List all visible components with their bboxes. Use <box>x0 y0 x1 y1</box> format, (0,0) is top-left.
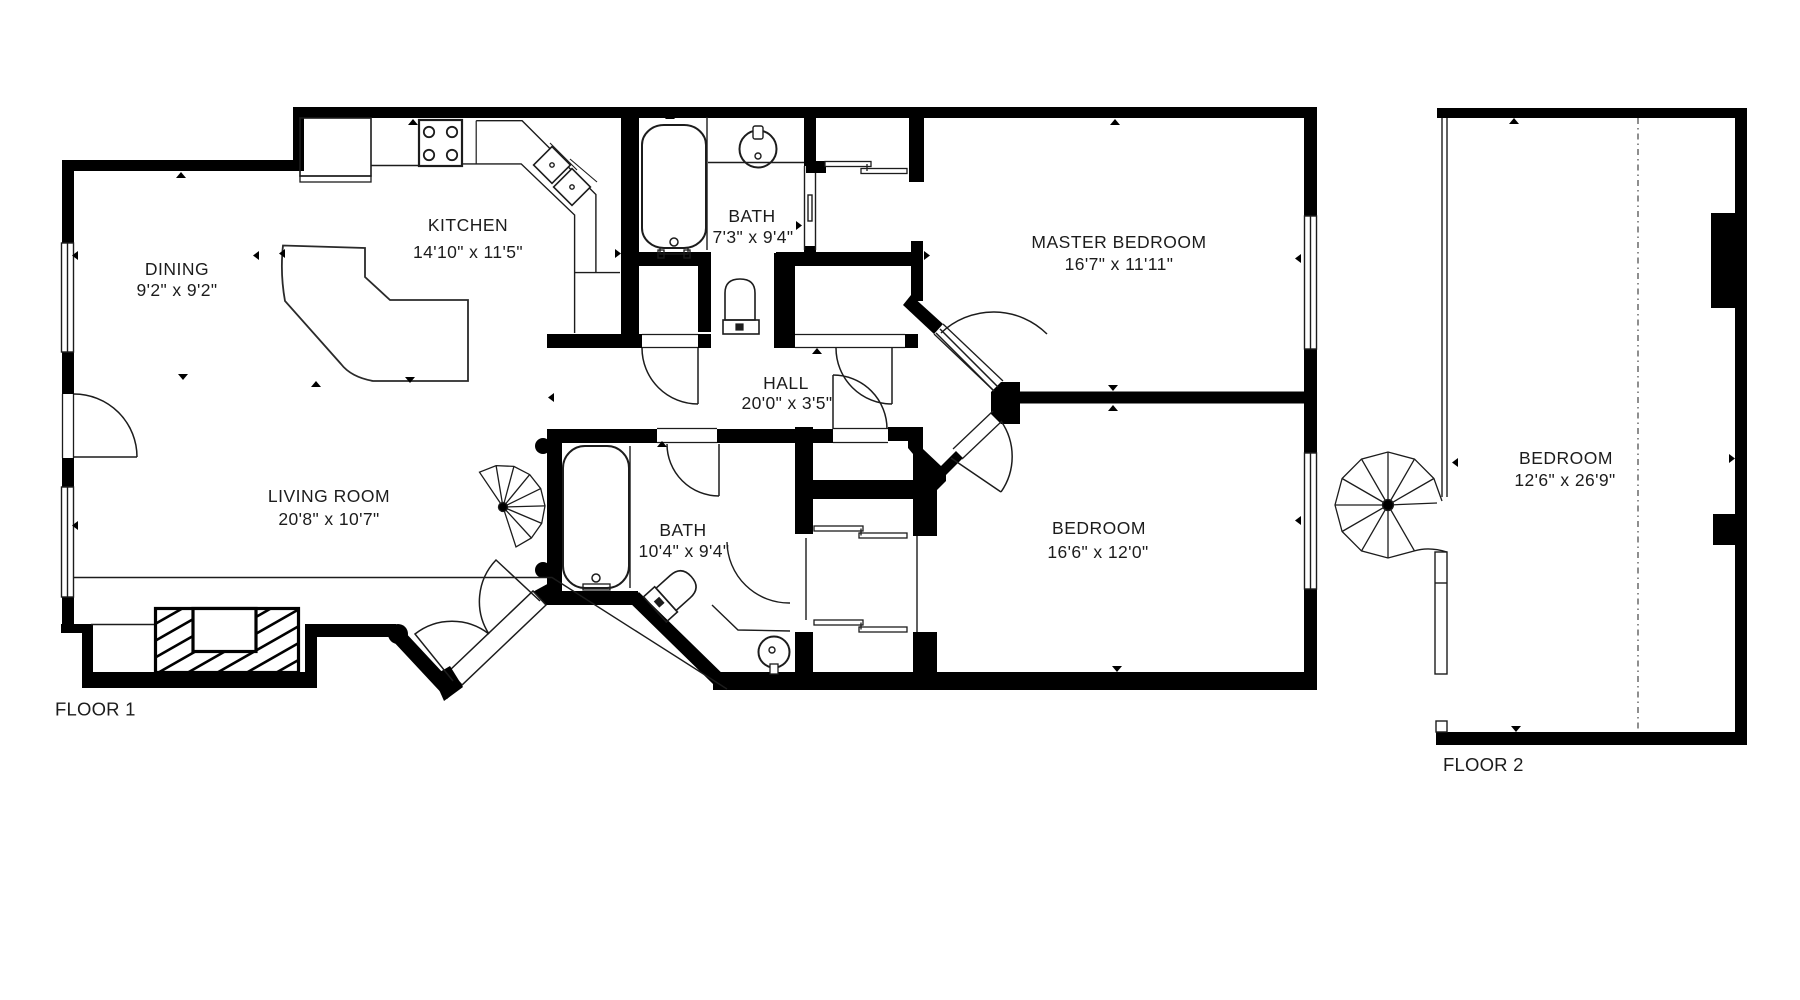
svg-text:BEDROOM: BEDROOM <box>1519 448 1613 468</box>
svg-text:20'0" x 3'5": 20'0" x 3'5" <box>741 393 832 413</box>
svg-text:FLOOR 2: FLOOR 2 <box>1443 754 1524 775</box>
svg-text:BEDROOM: BEDROOM <box>1052 518 1146 538</box>
svg-text:7'3" x 9'4": 7'3" x 9'4" <box>713 227 794 247</box>
svg-text:FLOOR 1: FLOOR 1 <box>55 699 136 720</box>
svg-text:HALL: HALL <box>763 373 809 393</box>
svg-text:9'2" x 9'2": 9'2" x 9'2" <box>137 280 218 300</box>
svg-text:BATH: BATH <box>728 206 775 226</box>
svg-text:14'10" x 11'5": 14'10" x 11'5" <box>413 242 523 262</box>
svg-text:BATH: BATH <box>659 520 706 540</box>
svg-text:16'7" x 11'11": 16'7" x 11'11" <box>1065 254 1174 274</box>
svg-text:DINING: DINING <box>145 259 209 279</box>
svg-text:LIVING ROOM: LIVING ROOM <box>268 486 390 506</box>
svg-text:MASTER BEDROOM: MASTER BEDROOM <box>1031 232 1206 252</box>
svg-text:16'6" x 12'0": 16'6" x 12'0" <box>1047 542 1148 562</box>
svg-text:10'4" x 9'4": 10'4" x 9'4" <box>638 541 729 561</box>
svg-text:20'8" x 10'7": 20'8" x 10'7" <box>278 509 379 529</box>
svg-text:KITCHEN: KITCHEN <box>428 215 508 235</box>
svg-text:12'6" x 26'9": 12'6" x 26'9" <box>1514 470 1615 490</box>
